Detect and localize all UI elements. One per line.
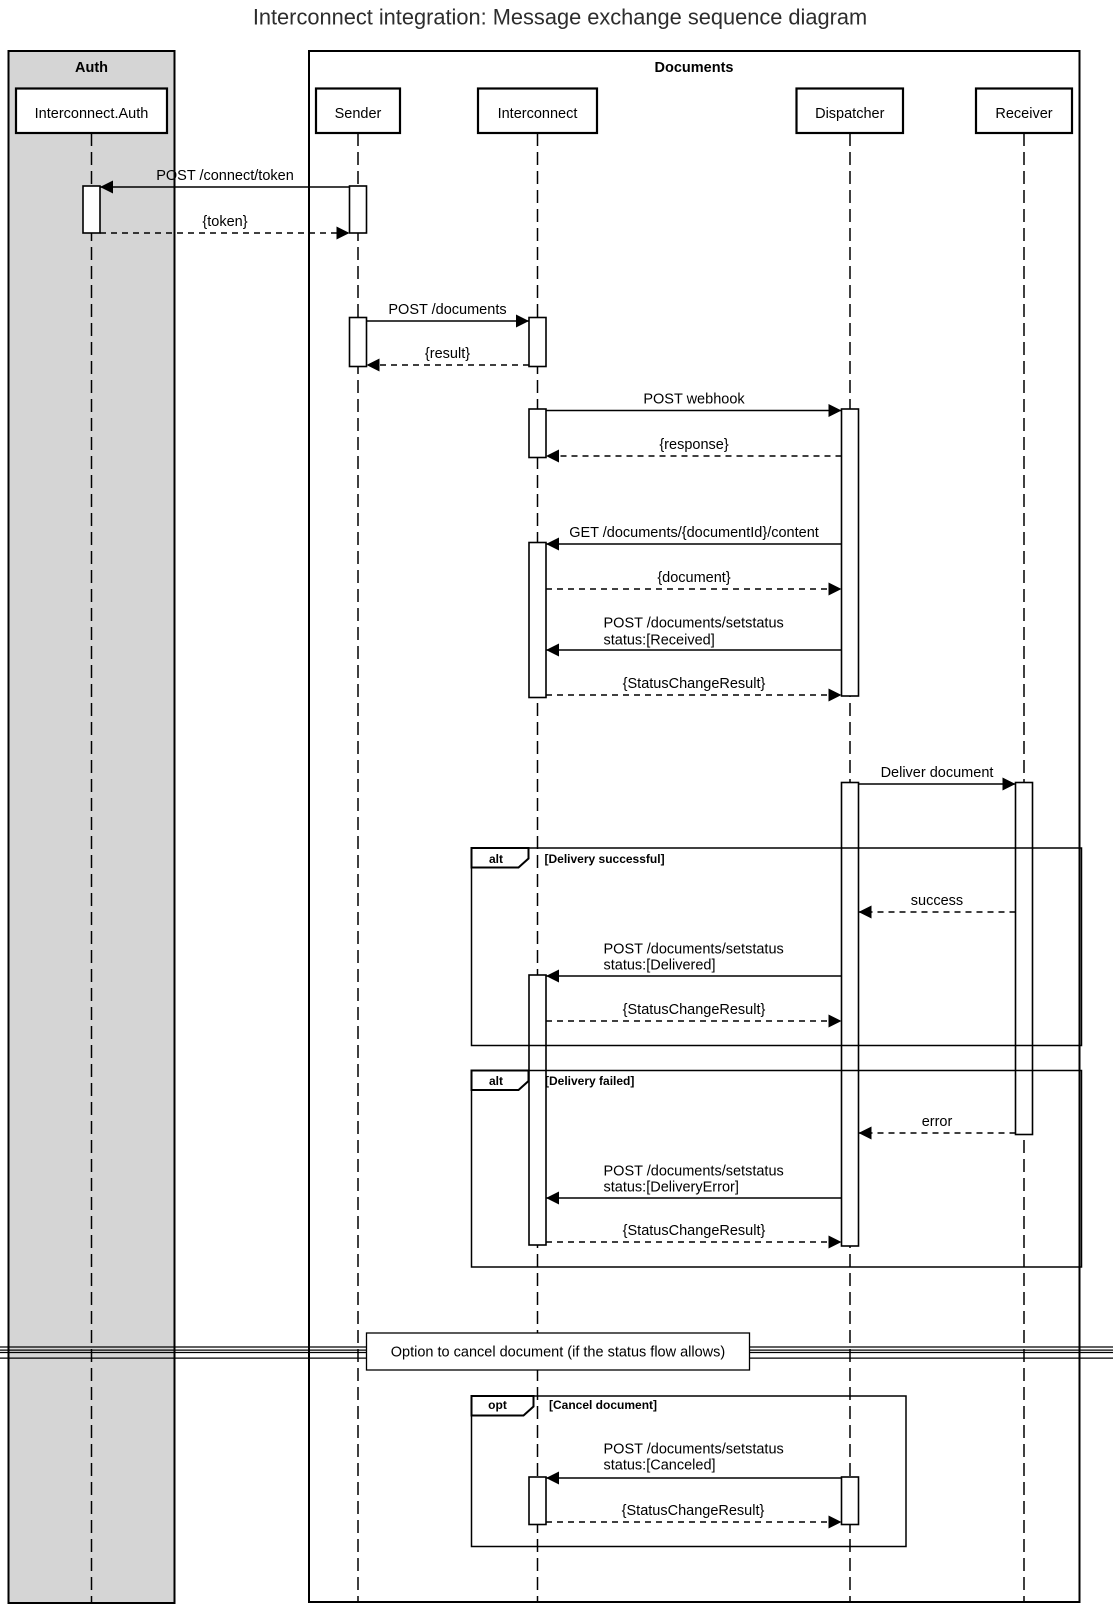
svg-text:Receiver: Receiver [995,106,1052,122]
svg-text:[Delivery failed]: [Delivery failed] [545,1074,634,1088]
svg-text:opt: opt [488,1398,507,1412]
svg-text:Documents: Documents [655,60,734,76]
svg-text:Option to cancel document (if: Option to cancel document (if the status… [391,1345,725,1361]
svg-text:alt: alt [489,1074,503,1088]
svg-text:alt: alt [489,852,503,866]
svg-text:POST /documents/setstatus: POST /documents/setstatus [604,942,784,958]
svg-text:POST /documents/setstatus: POST /documents/setstatus [604,1164,784,1180]
svg-text:POST /connect/token: POST /connect/token [156,168,294,184]
svg-text:success: success [911,893,963,909]
svg-text:Sender: Sender [335,106,382,122]
svg-text:{StatusChangeResult}: {StatusChangeResult} [623,1223,766,1239]
svg-text:Auth: Auth [75,60,108,76]
svg-text:{document}: {document} [657,570,731,586]
svg-text:Interconnect: Interconnect [498,106,578,122]
svg-text:POST /documents/setstatus: POST /documents/setstatus [604,1442,784,1458]
svg-text:Interconnect.Auth: Interconnect.Auth [35,106,149,122]
svg-text:{StatusChangeResult}: {StatusChangeResult} [623,1002,766,1018]
svg-text:[Delivery successful]: [Delivery successful] [545,852,665,866]
svg-text:Interconnect integration: Mess: Interconnect integration: Message exchan… [253,5,867,30]
svg-text:{response}: {response} [659,437,728,453]
svg-text:{StatusChangeResult}: {StatusChangeResult} [623,676,766,692]
svg-text:GET /documents/{documentId}/co: GET /documents/{documentId}/content [569,525,819,541]
svg-text:Deliver document: Deliver document [881,765,994,781]
svg-text:error: error [922,1114,953,1130]
svg-text:POST webhook: POST webhook [643,392,745,408]
svg-text:status:[Canceled]: status:[Canceled] [604,1458,716,1474]
svg-text:{token}: {token} [202,214,247,230]
svg-text:[Cancel document]: [Cancel document] [549,1398,657,1412]
svg-text:{StatusChangeResult}: {StatusChangeResult} [622,1503,765,1519]
svg-text:POST /documents/setstatus: POST /documents/setstatus [604,616,784,632]
svg-text:{result}: {result} [425,346,470,362]
svg-text:status:[Received]: status:[Received] [604,633,715,649]
svg-text:POST /documents: POST /documents [388,302,506,318]
svg-text:status:[Delivered]: status:[Delivered] [604,958,716,974]
svg-text:status:[DeliveryError]: status:[DeliveryError] [604,1180,739,1196]
svg-text:Dispatcher: Dispatcher [815,106,884,122]
